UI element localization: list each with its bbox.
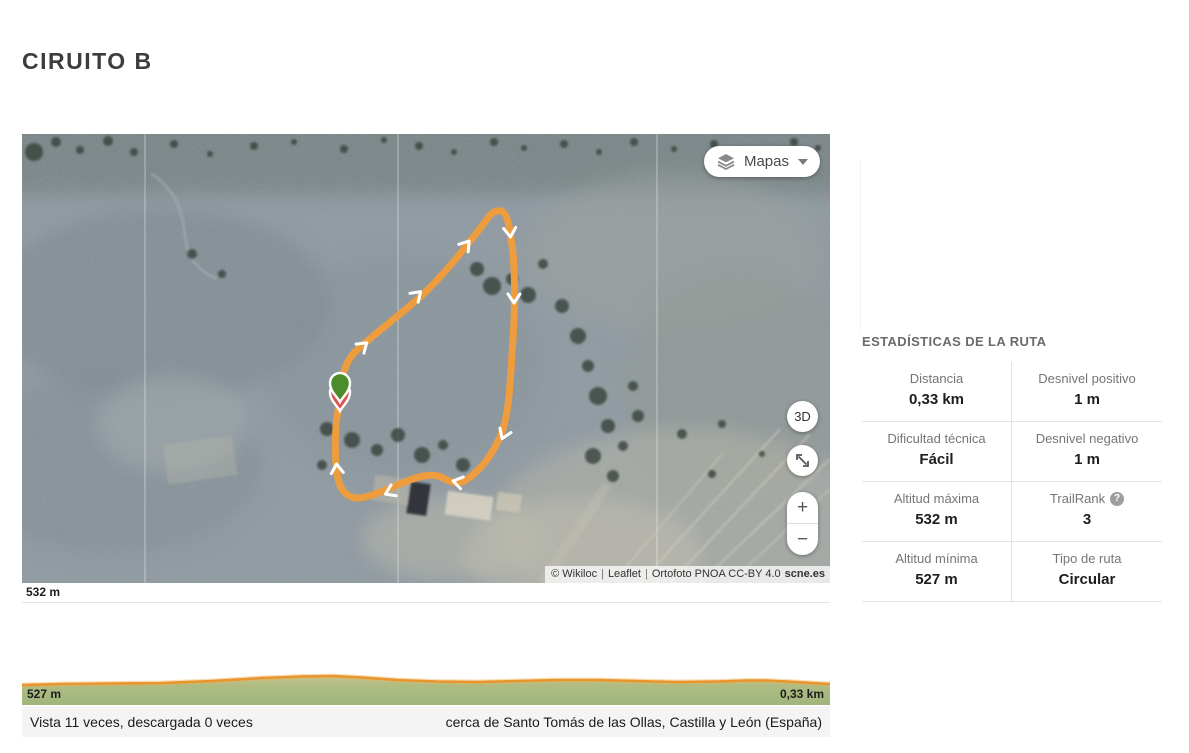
stat-label: Altitud mínima bbox=[866, 551, 1007, 566]
elevation-profile-canvas bbox=[22, 603, 830, 705]
satellite-imagery bbox=[22, 134, 830, 583]
stat-altitud-maxima: Altitud máxima 532 m bbox=[862, 482, 1012, 542]
zoom-out-button[interactable]: − bbox=[787, 524, 818, 555]
stat-distancia: Distancia 0,33 km bbox=[862, 362, 1012, 422]
stat-value: 527 m bbox=[866, 571, 1007, 588]
expand-icon bbox=[795, 453, 810, 468]
zoom-in-button[interactable]: + bbox=[787, 492, 818, 523]
stat-desnivel-positivo: Desnivel positivo 1 m bbox=[1012, 362, 1162, 422]
view-count-text: Vista 11 veces, descargada 0 veces bbox=[30, 714, 253, 730]
fullscreen-button[interactable] bbox=[787, 445, 818, 476]
stat-altitud-minima: Altitud mínima 527 m bbox=[862, 542, 1012, 602]
stat-tipo-de-ruta: Tipo de ruta Circular bbox=[1012, 542, 1162, 602]
stat-value: 532 m bbox=[866, 511, 1007, 528]
elevation-min-label: 527 m bbox=[27, 687, 61, 701]
layers-icon bbox=[717, 153, 735, 170]
map-attribution: © Wikiloc | Leaflet | Ortofoto PNOA CC-B… bbox=[545, 566, 830, 583]
stat-label: Tipo de ruta bbox=[1016, 551, 1158, 566]
stat-desnivel-negativo: Desnivel negativo 1 m bbox=[1012, 422, 1162, 482]
attribution-separator: | bbox=[645, 568, 648, 580]
zoom-control: + − bbox=[787, 492, 818, 555]
map-viewport[interactable]: Mapas 3D + − © Wikiloc | Leaflet | Ortof… bbox=[22, 134, 830, 583]
elevation-max-label: 532 m bbox=[26, 585, 60, 599]
stat-label: Dificultad técnica bbox=[866, 431, 1007, 446]
view-3d-button[interactable]: 3D bbox=[787, 401, 818, 432]
route-statistics-panel: ESTADÍSTICAS DE LA RUTA Distancia 0,33 k… bbox=[862, 334, 1162, 602]
route-page: CIRUITO B bbox=[0, 0, 1189, 753]
stat-dificultad: Dificultad técnica Fácil bbox=[862, 422, 1012, 482]
elevation-distance-label: 0,33 km bbox=[780, 687, 824, 701]
statistics-heading: ESTADÍSTICAS DE LA RUTA bbox=[862, 334, 1162, 349]
stat-trailrank: TrailRank ? 3 bbox=[1012, 482, 1162, 542]
stat-label: Desnivel positivo bbox=[1016, 371, 1158, 386]
attribution-ortofoto-text: Ortofoto PNOA CC-BY 4.0 bbox=[652, 568, 781, 580]
stat-label: Distancia bbox=[866, 371, 1007, 386]
elevation-profile[interactable]: 527 m 0,33 km bbox=[22, 603, 830, 705]
attribution-wikiloc-link[interactable]: © Wikiloc bbox=[551, 568, 597, 580]
ad-slot-edge bbox=[860, 160, 861, 330]
stat-value: 1 m bbox=[1016, 391, 1158, 408]
chevron-down-icon bbox=[798, 159, 808, 165]
stat-label: Desnivel negativo bbox=[1016, 431, 1158, 446]
stat-value: 0,33 km bbox=[866, 391, 1007, 408]
route-meta-bar: Vista 11 veces, descargada 0 veces cerca… bbox=[22, 706, 830, 737]
route-location-text[interactable]: cerca de Santo Tomás de las Ollas, Casti… bbox=[446, 714, 822, 730]
stat-value: 3 bbox=[1016, 511, 1158, 528]
map-layers-label: Mapas bbox=[744, 153, 789, 170]
help-icon[interactable]: ? bbox=[1110, 492, 1124, 506]
attribution-leaflet-link[interactable]: Leaflet bbox=[608, 568, 641, 580]
stat-value: Circular bbox=[1016, 571, 1158, 588]
stat-value: 1 m bbox=[1016, 451, 1158, 468]
statistics-grid: Distancia 0,33 km Desnivel positivo 1 m … bbox=[862, 362, 1162, 602]
stat-value: Fácil bbox=[866, 451, 1007, 468]
stat-label-text: TrailRank bbox=[1050, 491, 1105, 506]
map-layers-button[interactable]: Mapas bbox=[704, 146, 820, 177]
stat-label: TrailRank ? bbox=[1016, 491, 1158, 506]
attribution-scne-link[interactable]: scne.es bbox=[785, 568, 825, 580]
page-title: CIRUITO B bbox=[22, 48, 153, 75]
attribution-separator: | bbox=[601, 568, 604, 580]
stat-label: Altitud máxima bbox=[866, 491, 1007, 506]
